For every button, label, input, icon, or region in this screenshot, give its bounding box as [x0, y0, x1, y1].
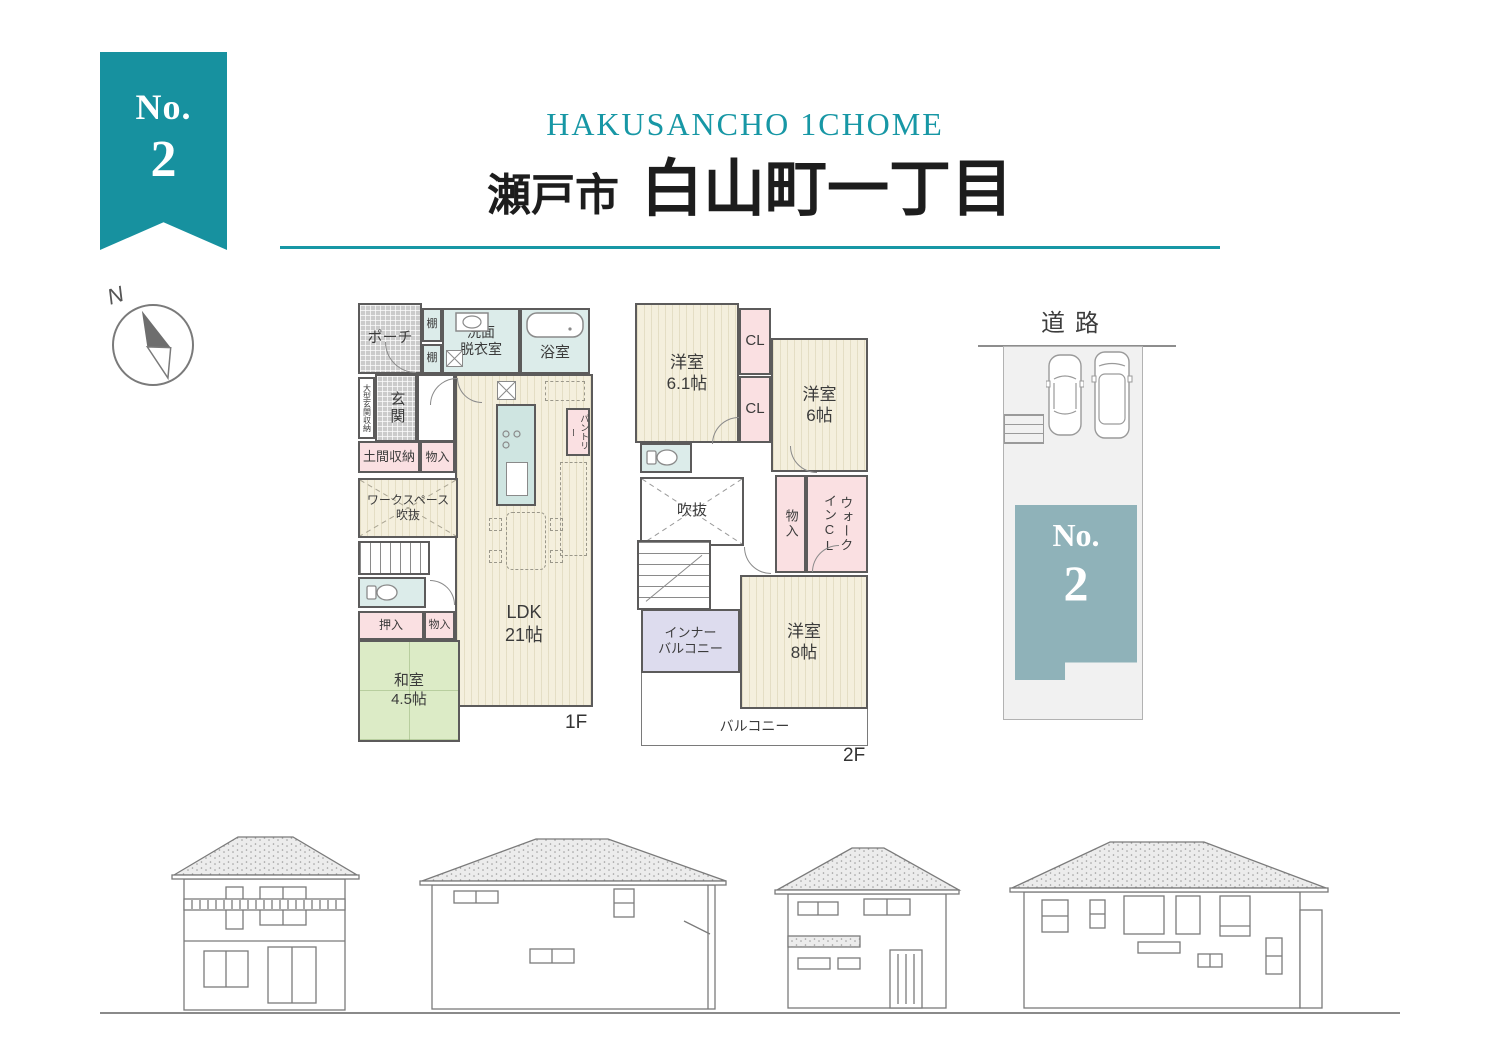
refrigerator-icon [497, 381, 516, 400]
balcony-label: バルコニー [641, 716, 868, 736]
room-pantry: パントリー [566, 408, 590, 456]
room-closet1: CL [739, 308, 771, 375]
appliance-outline [545, 381, 585, 401]
kitchen-sink-icon [506, 462, 528, 496]
site-steps [1004, 414, 1044, 444]
room-oshiire: 押入 [358, 611, 424, 640]
dining-chair [489, 550, 502, 563]
room-storage-a: 物入 [420, 441, 455, 473]
room-closet2: CL [739, 376, 771, 443]
stairs-2f [637, 540, 711, 610]
door-arc [744, 547, 771, 574]
elevation-west [418, 831, 730, 1013]
elevation-north [772, 836, 964, 1013]
title-town: 白山町一丁目 [641, 156, 1013, 224]
washing-machine-icon [446, 350, 463, 367]
room-shelf-bottom: 棚 [422, 344, 442, 374]
elevation-south [168, 831, 363, 1013]
room-shelf-top: 棚 [422, 308, 442, 342]
floor1-label: 1F [565, 712, 587, 734]
compass-icon: N [95, 281, 207, 391]
room-storage-b: 物入 [424, 611, 455, 640]
title-underline [280, 246, 1220, 249]
plot-number: 2 [1015, 554, 1137, 612]
road-label: 道路 [1000, 303, 1150, 338]
title-city: 瀬戸市 [487, 171, 619, 220]
flyer-page: No. 2 HAKUSANCHO 1CHOME 瀬戸市白山町一丁目 N ポーチ … [0, 0, 1500, 1061]
room-workspace: ワークスペース 吹抜 [358, 478, 458, 538]
room-washitsu: 和室 4.5帖 [358, 640, 460, 742]
room-void-2f: 吹抜 [640, 477, 744, 546]
room-entrance-storage: 大型玄関収納 [358, 377, 375, 439]
room-storage-2f: 物入 [775, 475, 806, 573]
ground-line [100, 1012, 1400, 1014]
plot-number-ribbon: No. 2 [100, 52, 227, 250]
plot-footprint: No. 2 [1015, 505, 1137, 680]
car-icon [1091, 350, 1133, 440]
door-arc [430, 580, 455, 605]
compass-north-label: N [104, 281, 127, 310]
room-bedroom3: 洋室 8帖 [740, 575, 868, 709]
floor2-label: 2F [843, 745, 865, 767]
dining-table [506, 512, 546, 570]
ribbon-no-label: No. [100, 86, 227, 128]
toilet-icon [366, 582, 400, 603]
room-entrance: 玄関 [375, 374, 417, 442]
plot-no-label: No. [1015, 517, 1137, 554]
room-inner-balcony: インナー バルコニー [641, 609, 740, 673]
page-title: 瀬戸市白山町一丁目 [300, 138, 1200, 228]
car-icon [1046, 353, 1084, 437]
stove-icon [500, 428, 524, 452]
bathtub-icon [526, 312, 584, 338]
ribbon-number: 2 [100, 130, 227, 189]
counter-outline [560, 462, 587, 556]
toilet-icon [646, 447, 680, 468]
room-bedroom2: 洋室 6帖 [771, 338, 868, 472]
washbasin-icon [455, 312, 489, 332]
stairs-1f [358, 541, 430, 575]
room-doma-storage: 土間収納 [358, 441, 420, 473]
elevation-east [1008, 830, 1332, 1013]
dining-chair [489, 518, 502, 531]
